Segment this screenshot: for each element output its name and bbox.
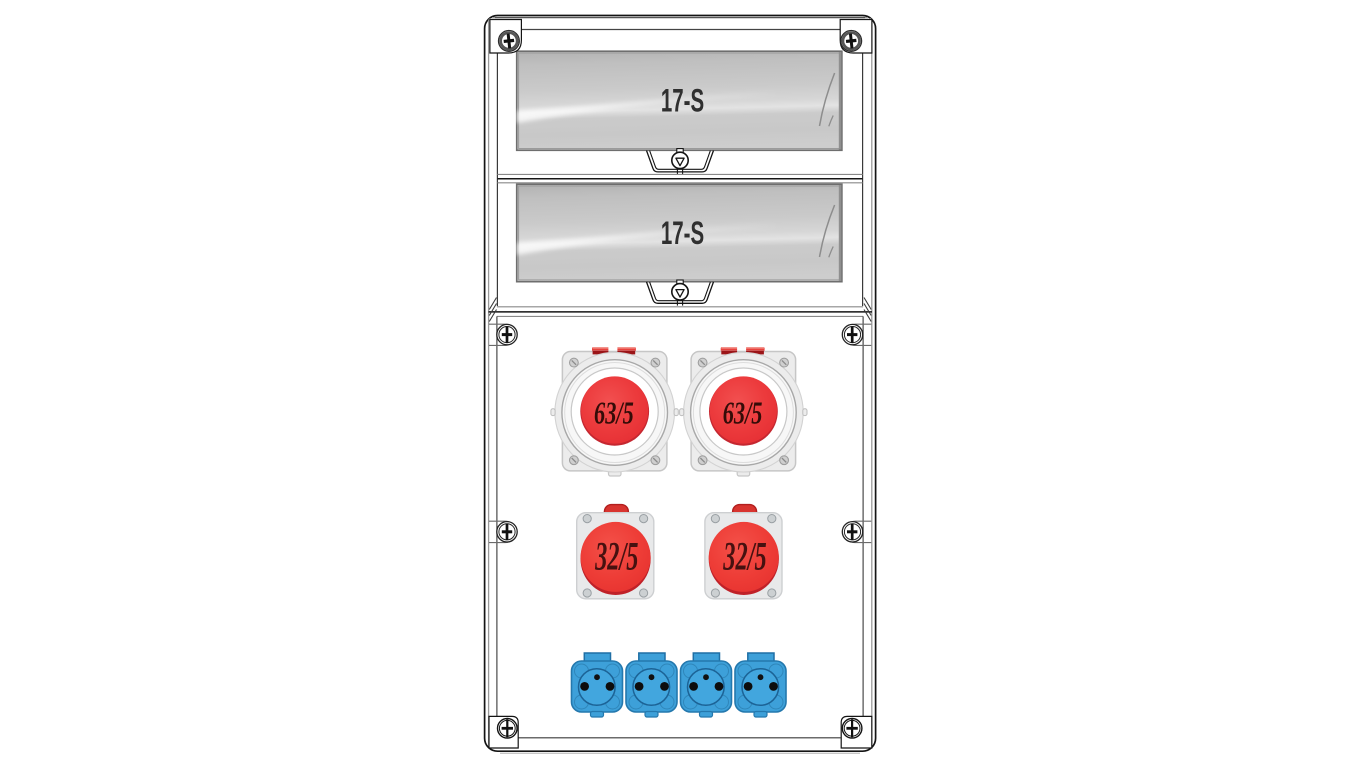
svg-text:17-S: 17-S (661, 81, 704, 118)
svg-text:63/5: 63/5 (723, 395, 763, 431)
svg-text:17-S: 17-S (661, 214, 704, 251)
svg-text:63/5: 63/5 (594, 395, 634, 431)
svg-text:32/5: 32/5 (723, 535, 767, 580)
svg-text:32/5: 32/5 (594, 535, 638, 580)
